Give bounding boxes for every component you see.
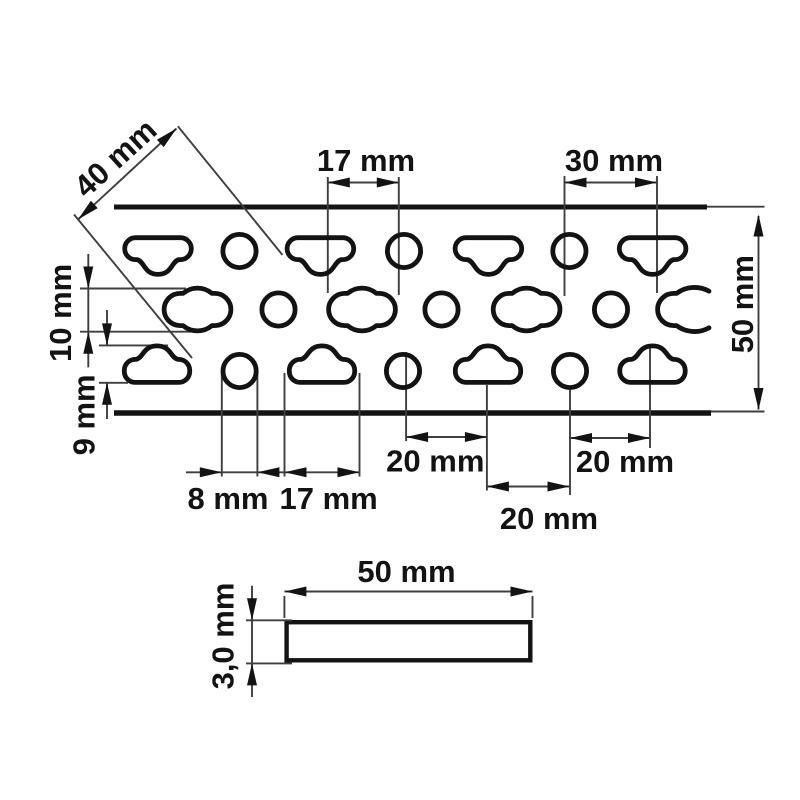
svg-text:9 mm: 9 mm — [67, 374, 102, 455]
svg-text:40 mm: 40 mm — [67, 112, 163, 204]
svg-text:17 mm: 17 mm — [279, 481, 377, 516]
svg-text:20 mm: 20 mm — [500, 501, 598, 536]
svg-text:8 mm: 8 mm — [188, 481, 269, 516]
svg-text:50 mm: 50 mm — [725, 255, 760, 353]
svg-text:30 mm: 30 mm — [565, 143, 663, 178]
svg-text:20 mm: 20 mm — [386, 444, 484, 479]
svg-text:17 mm: 17 mm — [317, 143, 415, 178]
svg-text:10 mm: 10 mm — [43, 264, 78, 362]
svg-text:20 mm: 20 mm — [576, 444, 674, 479]
svg-text:3,0 mm: 3,0 mm — [205, 583, 240, 690]
svg-text:50 mm: 50 mm — [357, 554, 455, 589]
